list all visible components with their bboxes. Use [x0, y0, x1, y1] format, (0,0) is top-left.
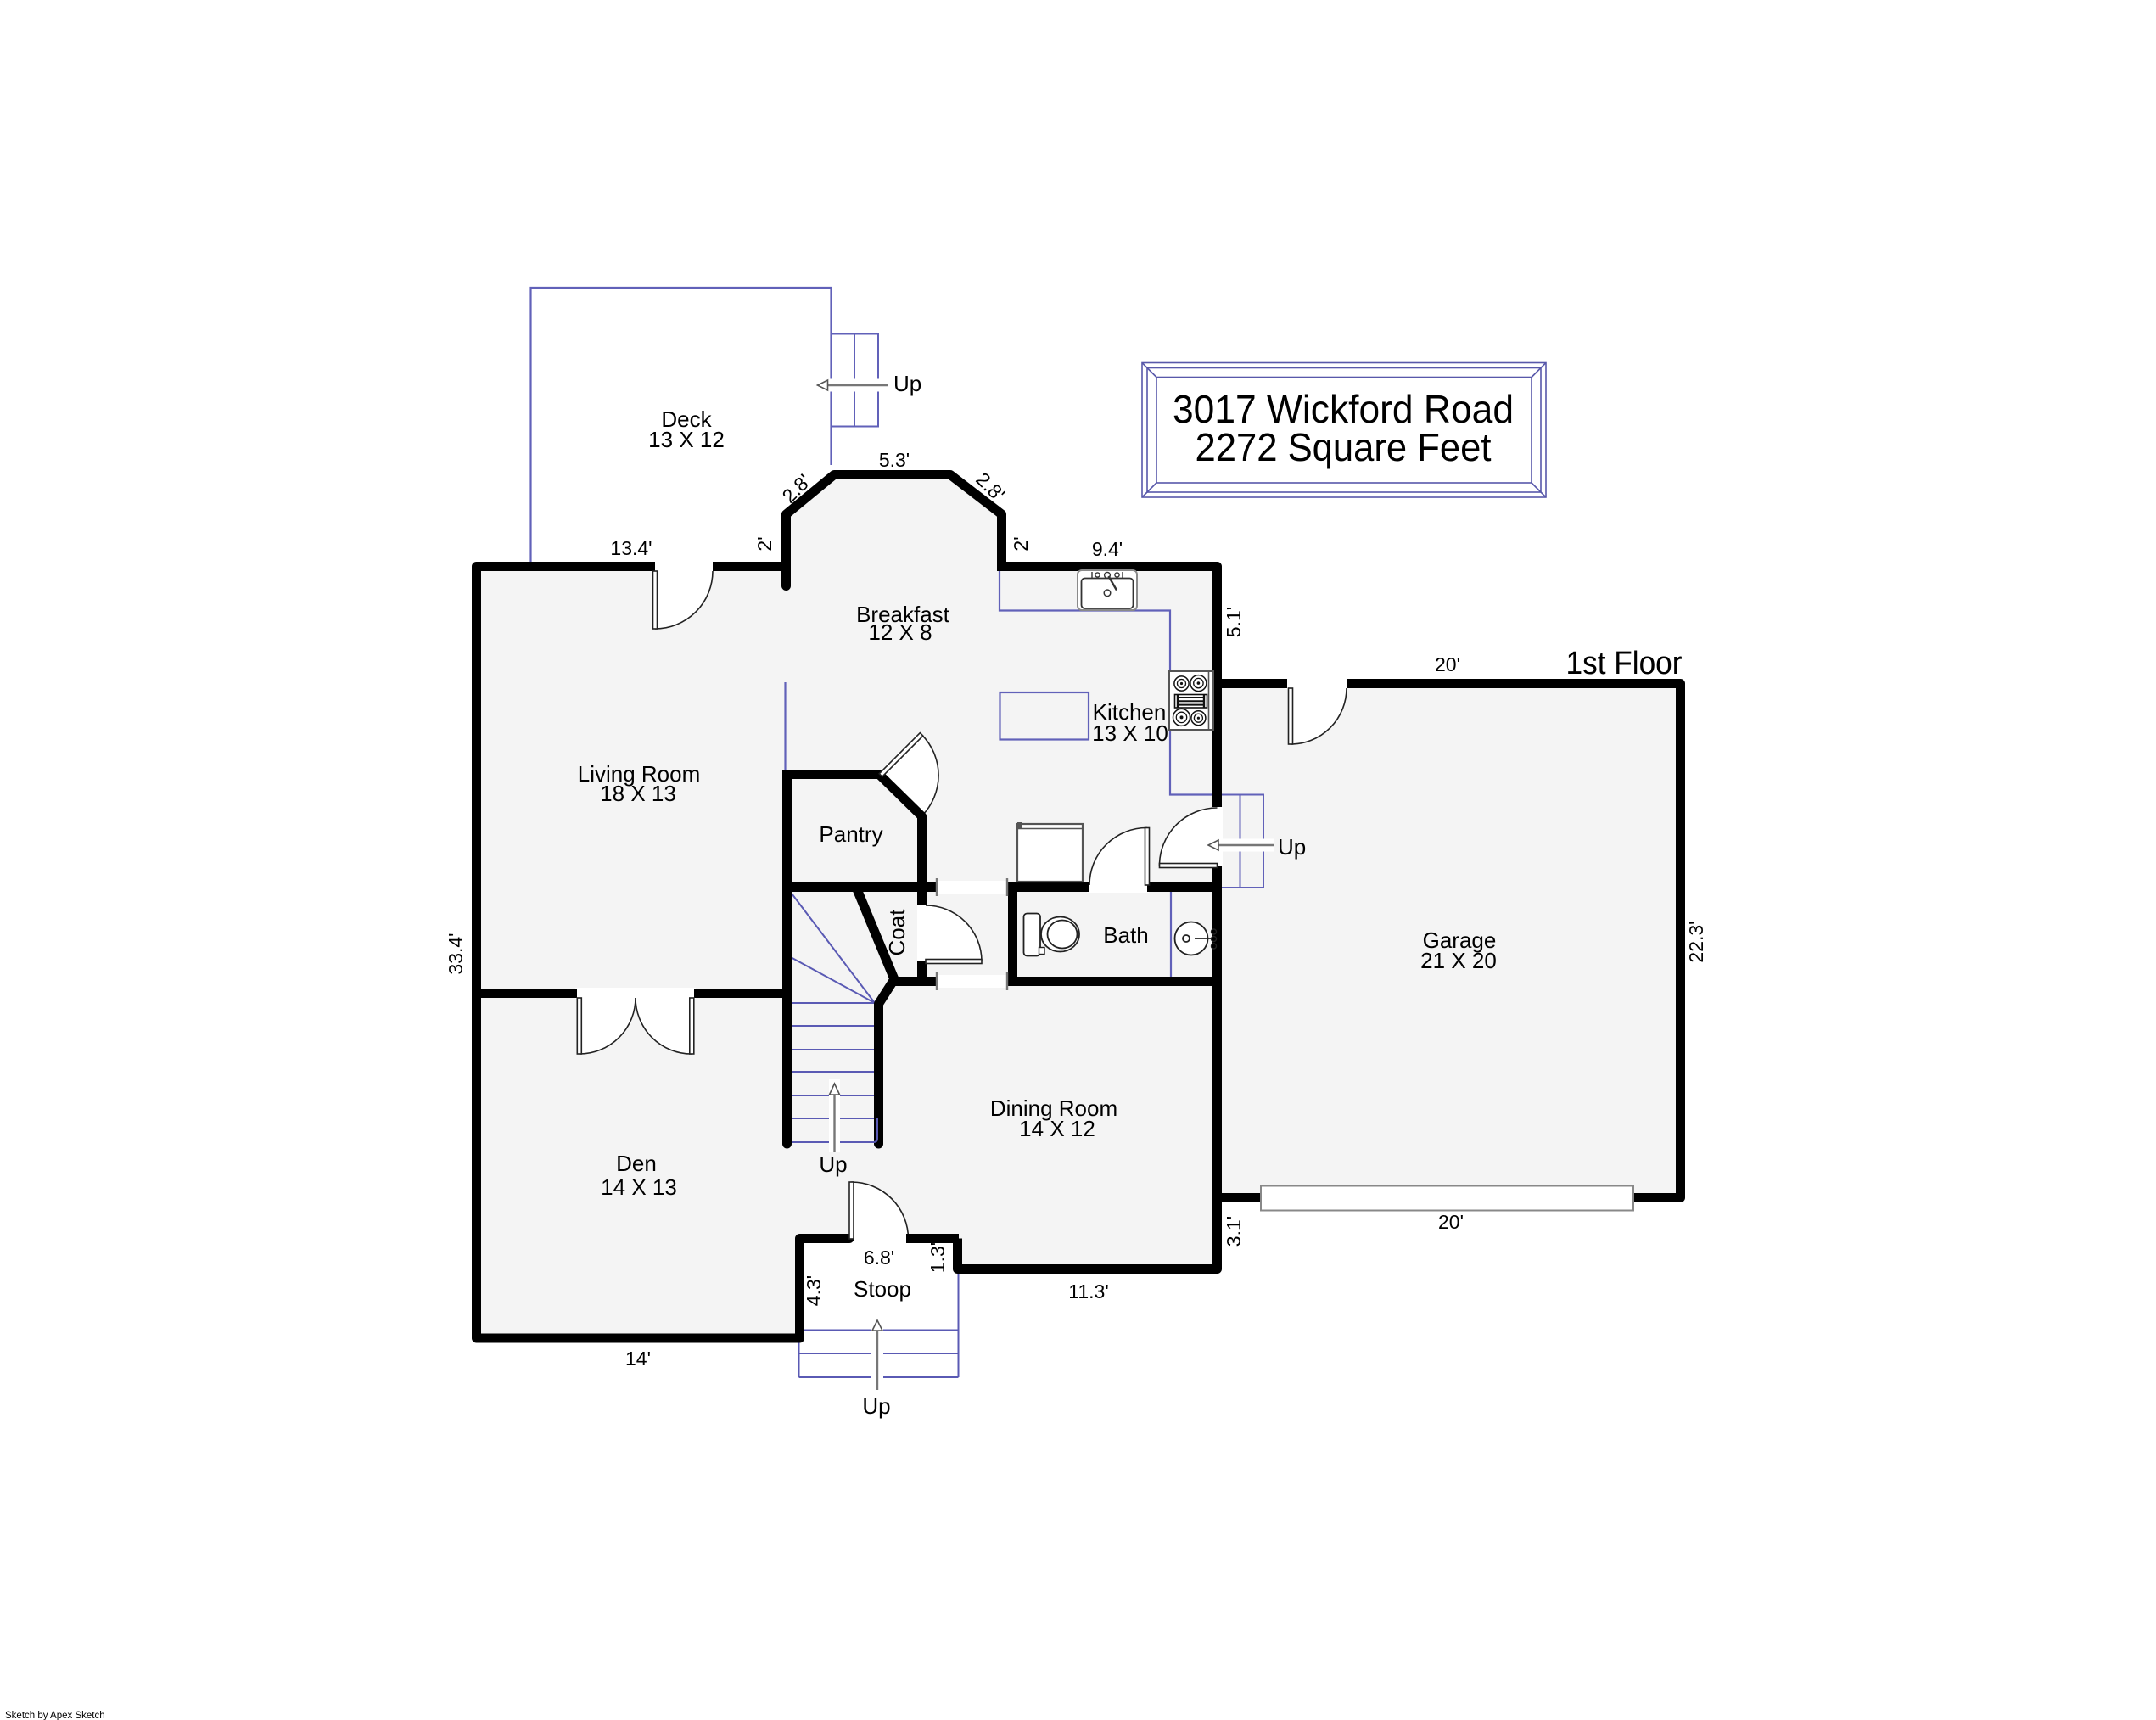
svg-text:Bath: Bath	[1103, 922, 1149, 948]
svg-text:14 X 13: 14 X 13	[601, 1174, 677, 1200]
svg-text:14': 14'	[625, 1347, 651, 1370]
svg-text:Up: Up	[819, 1151, 847, 1177]
svg-text:Stoop: Stoop	[854, 1276, 911, 1302]
svg-text:Sketch by Apex Sketch: Sketch by Apex Sketch	[5, 1711, 105, 1720]
svg-text:Up: Up	[893, 371, 921, 396]
svg-text:13 X 12: 13 X 12	[648, 427, 725, 452]
svg-text:9.4': 9.4'	[1092, 538, 1123, 560]
svg-text:6.8': 6.8'	[864, 1247, 894, 1269]
svg-text:13 X 10: 13 X 10	[1092, 720, 1168, 746]
svg-text:13.4': 13.4'	[610, 537, 652, 559]
svg-text:14 X 12: 14 X 12	[1019, 1116, 1095, 1141]
svg-text:Up: Up	[862, 1393, 890, 1419]
svg-text:20': 20'	[1438, 1211, 1464, 1233]
svg-text:11.3': 11.3'	[1068, 1280, 1108, 1303]
svg-text:18 X 13: 18 X 13	[600, 781, 676, 806]
svg-text:Coat: Coat	[884, 909, 910, 956]
svg-text:Up: Up	[1278, 834, 1306, 860]
svg-text:20': 20'	[1435, 653, 1460, 675]
svg-text:3.1': 3.1'	[1223, 1216, 1245, 1247]
svg-text:1.3': 1.3'	[927, 1242, 949, 1273]
svg-text:4.3': 4.3'	[803, 1275, 825, 1306]
svg-text:12 X 8: 12 X 8	[868, 619, 932, 645]
svg-text:22.3': 22.3'	[1685, 921, 1707, 962]
svg-text:5.3': 5.3'	[879, 449, 910, 471]
svg-text:5.1': 5.1'	[1223, 607, 1245, 637]
svg-text:Pantry: Pantry	[819, 821, 882, 847]
svg-text:Den: Den	[616, 1151, 657, 1176]
svg-text:21 X 20: 21 X 20	[1420, 948, 1497, 973]
svg-text:1st Floor: 1st Floor	[1566, 646, 1683, 681]
svg-text:2': 2'	[753, 536, 776, 551]
svg-text:2272 Square Feet: 2272 Square Feet	[1196, 425, 1492, 469]
svg-text:33.4': 33.4'	[445, 933, 467, 974]
svg-text:2': 2'	[1010, 536, 1032, 551]
